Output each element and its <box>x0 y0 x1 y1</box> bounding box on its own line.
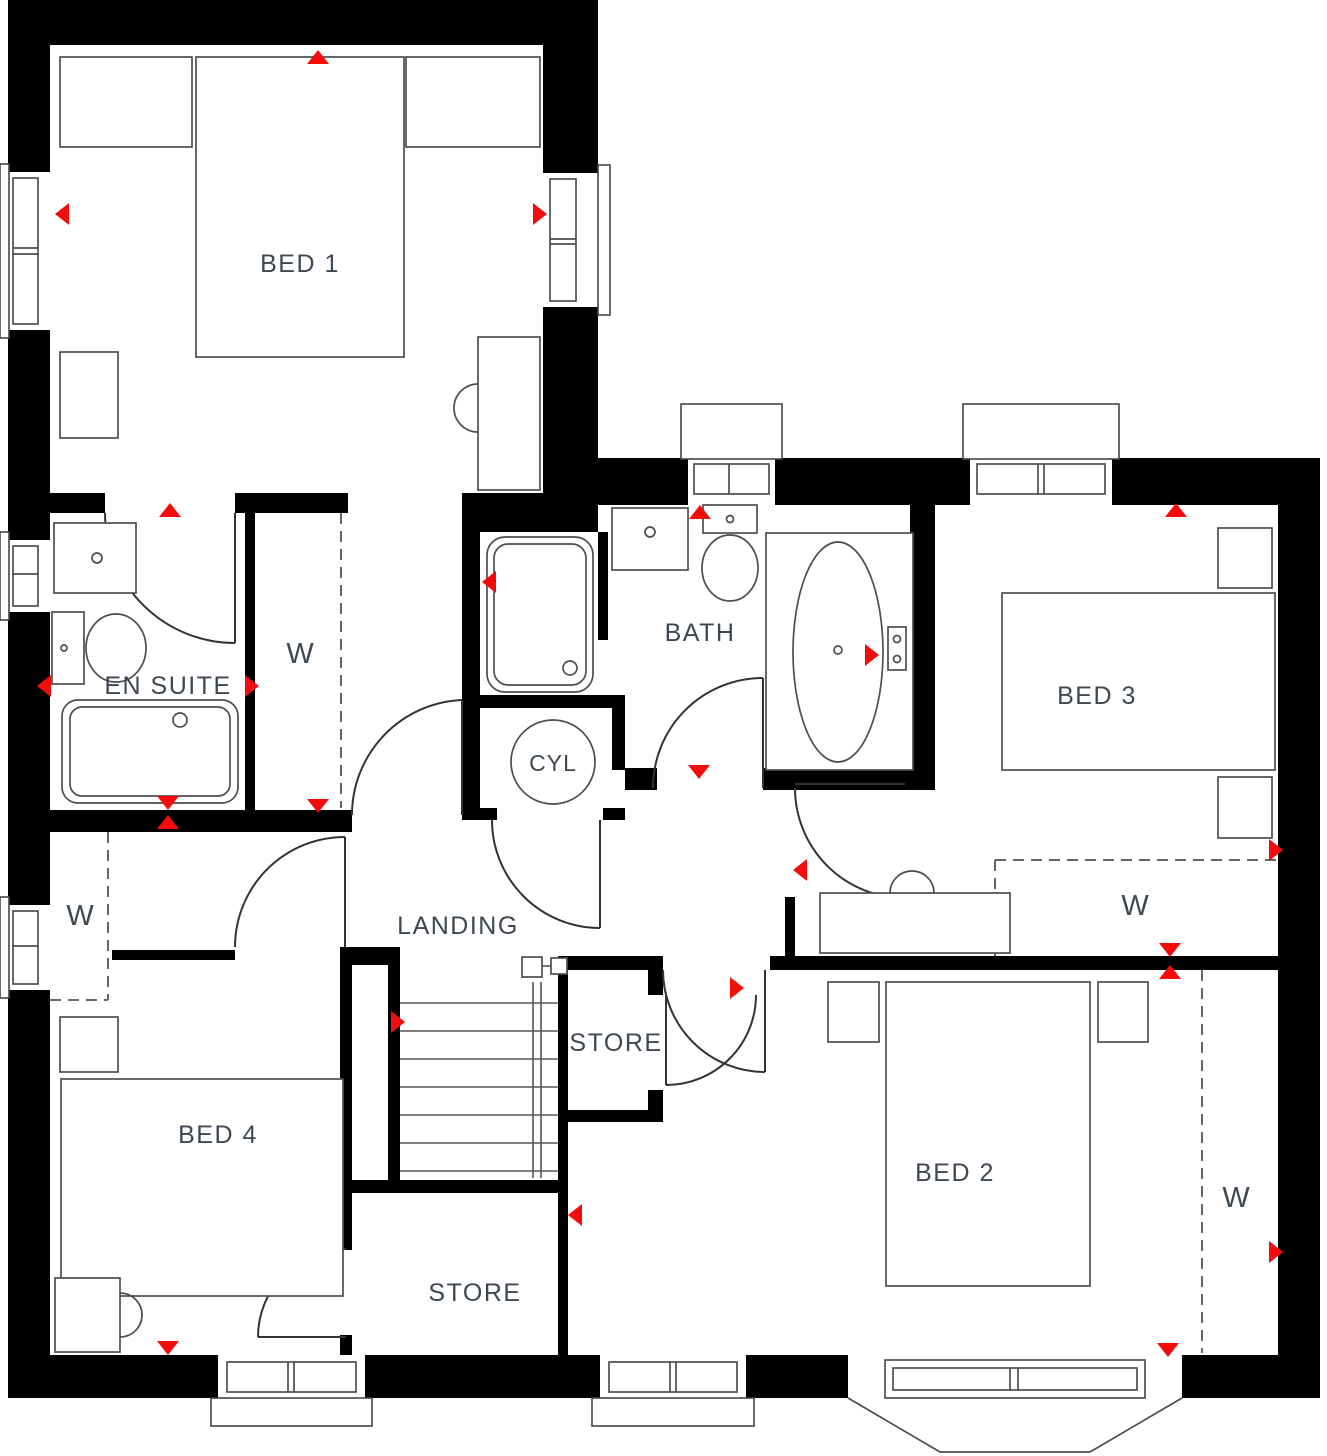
bed1-corridor-door <box>352 700 462 815</box>
bed1-right-window <box>543 165 610 315</box>
landing-window <box>0 897 50 998</box>
stairs-newel-post <box>551 958 567 974</box>
bed2-window <box>592 1355 754 1426</box>
stairs <box>400 957 567 1178</box>
bath-basin <box>612 508 688 570</box>
bed3-door <box>795 784 905 898</box>
ensuite-toilet-cistern <box>52 612 84 684</box>
bed3-window <box>963 404 1119 505</box>
room-label-bed3: BED 3 <box>1057 682 1137 710</box>
marker-down-arrow <box>1159 943 1181 957</box>
bed1-desk <box>478 337 540 490</box>
room-label-bath: BATH <box>665 619 736 647</box>
ensuite-window <box>0 532 50 620</box>
room-label-ensuite: EN SUITE <box>104 672 231 700</box>
floor-plan: BED 1 EN SUITE W BATH CYL BED 3 W LANDIN… <box>0 0 1327 1456</box>
bed4-chair <box>120 1293 142 1337</box>
room-label-w-bed2: W <box>1222 1182 1250 1214</box>
room-label-cyl: CYL <box>529 750 577 776</box>
stairs-newel-post <box>522 957 542 977</box>
room-label-bed2: BED 2 <box>915 1159 995 1187</box>
room-label-w-ensuite: W <box>286 638 314 670</box>
bed4-desk <box>55 1278 120 1352</box>
room-label-store-lower: STORE <box>428 1279 521 1307</box>
bed1-left-window <box>0 164 50 338</box>
bed2-table-left <box>828 982 879 1042</box>
bath-toilet-bowl <box>702 535 758 601</box>
bed2-door <box>663 970 765 1072</box>
bath-window <box>681 404 782 505</box>
room-label-bed4: BED 4 <box>178 1121 258 1149</box>
marker-down-arrow <box>1157 1343 1179 1357</box>
bathtub-tap-panel <box>888 627 906 670</box>
bed1-bed <box>196 57 404 357</box>
floor-plan-canvas: BED 1 EN SUITE W BATH CYL BED 3 W LANDIN… <box>0 0 1327 1456</box>
bed1-wardrobe-right <box>406 57 540 147</box>
bath-door <box>653 678 763 788</box>
bed1-wardrobe-left <box>60 57 192 147</box>
bed1-cabinet <box>60 352 118 438</box>
bed2-table-right <box>1098 982 1148 1042</box>
marker-down-arrow <box>688 765 710 779</box>
bed4-window <box>211 1355 372 1426</box>
marker-up-arrow <box>159 503 181 517</box>
bed3-table-top <box>1218 528 1272 588</box>
room-label-store-upper: STORE <box>569 1029 662 1057</box>
ensuite-shower-tray <box>62 700 238 803</box>
bed1-chair <box>454 384 478 432</box>
room-label-w-landing: W <box>66 900 94 932</box>
bed4-table <box>60 1017 118 1072</box>
marker-left-arrow <box>55 203 69 225</box>
store-upper-door <box>666 995 756 1085</box>
bay-window <box>848 1355 1182 1452</box>
bed3-chair <box>890 871 934 893</box>
marker-down-arrow <box>157 1341 179 1355</box>
bed3-desk <box>820 893 1010 953</box>
marker-left-arrow <box>568 1204 582 1226</box>
marker-up-arrow <box>1165 503 1187 517</box>
bed4-door <box>235 837 345 947</box>
marker-left-arrow <box>793 859 807 881</box>
bed3-bed <box>1002 593 1275 770</box>
bed3-table-bottom <box>1218 777 1272 838</box>
ensuite-basin <box>54 523 136 593</box>
bed4-bed <box>61 1079 343 1296</box>
bed2-bed <box>886 982 1090 1286</box>
bath-toilet-cistern <box>703 505 757 533</box>
marker-right-arrow <box>730 977 744 999</box>
room-label-bed1: BED 1 <box>260 250 340 278</box>
room-label-landing: LANDING <box>397 912 519 940</box>
room-label-w-bed3: W <box>1121 890 1149 922</box>
